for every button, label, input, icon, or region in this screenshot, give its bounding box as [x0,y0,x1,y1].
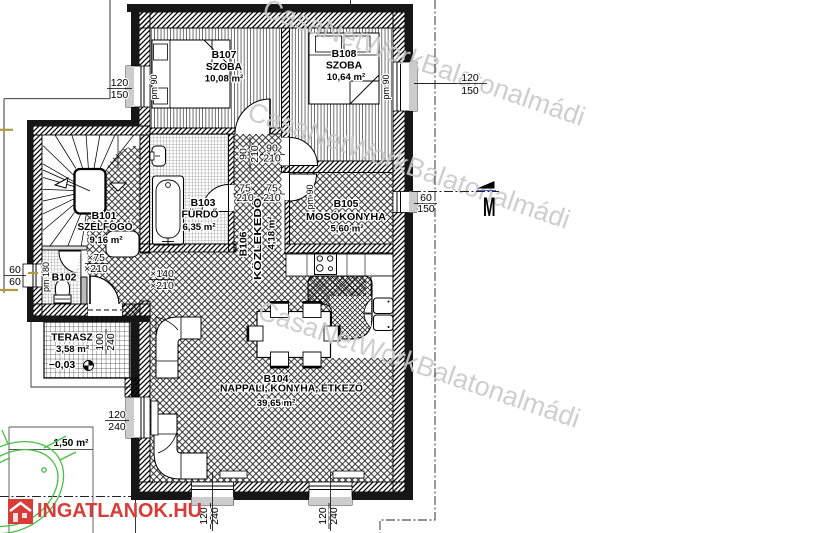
svg-text:×210: ×210 [150,280,174,292]
svg-text:9,16 m²: 9,16 m² [89,235,122,246]
svg-text:10,08 m²: 10,08 m² [205,74,243,85]
svg-text:120: 120 [111,77,129,89]
svg-text:M: M [483,192,496,222]
svg-text:pm 90: pm 90 [305,184,315,209]
svg-text:150: 150 [417,203,435,215]
svg-text:B101: B101 [92,211,117,222]
svg-text:pm 90: pm 90 [381,74,391,99]
svg-text:B108: B108 [332,49,357,60]
svg-text:INGATLANOK.HU: INGATLANOK.HU [37,500,202,522]
svg-text:120: 120 [461,72,479,84]
svg-text:60: 60 [9,264,21,276]
svg-text:SZOBA: SZOBA [206,62,243,73]
svg-text:150: 150 [111,89,129,101]
svg-text:120: 120 [108,409,126,421]
svg-text:−0,03: −0,03 [49,359,76,371]
svg-text:FÜRDŐ: FÜRDŐ [182,208,219,221]
svg-text:150: 150 [461,85,479,97]
svg-text:SZÉLFOGÓ: SZÉLFOGÓ [78,220,133,233]
svg-text:240: 240 [105,333,117,351]
svg-text:×210: ×210 [84,263,108,275]
svg-text:240: 240 [108,421,126,433]
svg-text:NAPPALI, KONYHA, ÉTKEZŐ: NAPPALI, KONYHA, ÉTKEZŐ [220,382,363,395]
svg-text:B102: B102 [52,273,77,284]
svg-text:210: 210 [263,192,281,204]
svg-text:KÖZLEKEDŐ: KÖZLEKEDŐ [251,198,264,280]
svg-text:pm 180: pm 180 [41,262,51,292]
svg-text:5,60 m²: 5,60 m² [330,224,363,235]
svg-text:B105: B105 [334,199,359,210]
svg-text:210: 210 [249,145,261,163]
svg-text:240: 240 [328,507,340,525]
svg-text:B106: B106 [239,231,250,256]
svg-text:B103: B103 [191,198,216,209]
svg-text:39,65 m²: 39,65 m² [257,398,295,409]
svg-text:210: 210 [263,153,281,165]
svg-text:60: 60 [9,276,21,288]
svg-text:MOSÓKONYHA: MOSÓKONYHA [306,210,387,223]
svg-text:6,35 m²: 6,35 m² [182,222,215,233]
svg-text:SZOBA: SZOBA [326,61,363,72]
svg-text:pm 90: pm 90 [149,74,159,99]
svg-text:90: 90 [238,148,250,160]
svg-text:B107: B107 [212,50,237,61]
svg-text:240: 240 [209,507,221,525]
svg-text:TERASZ: TERASZ [51,333,93,344]
svg-text:4,18 m²: 4,18 m² [267,216,278,249]
svg-text:10,64 m²: 10,64 m² [327,72,365,83]
svg-text:3,58 m²: 3,58 m² [56,344,89,355]
svg-text:210: 210 [236,192,254,204]
svg-text:×140: ×140 [150,268,174,280]
